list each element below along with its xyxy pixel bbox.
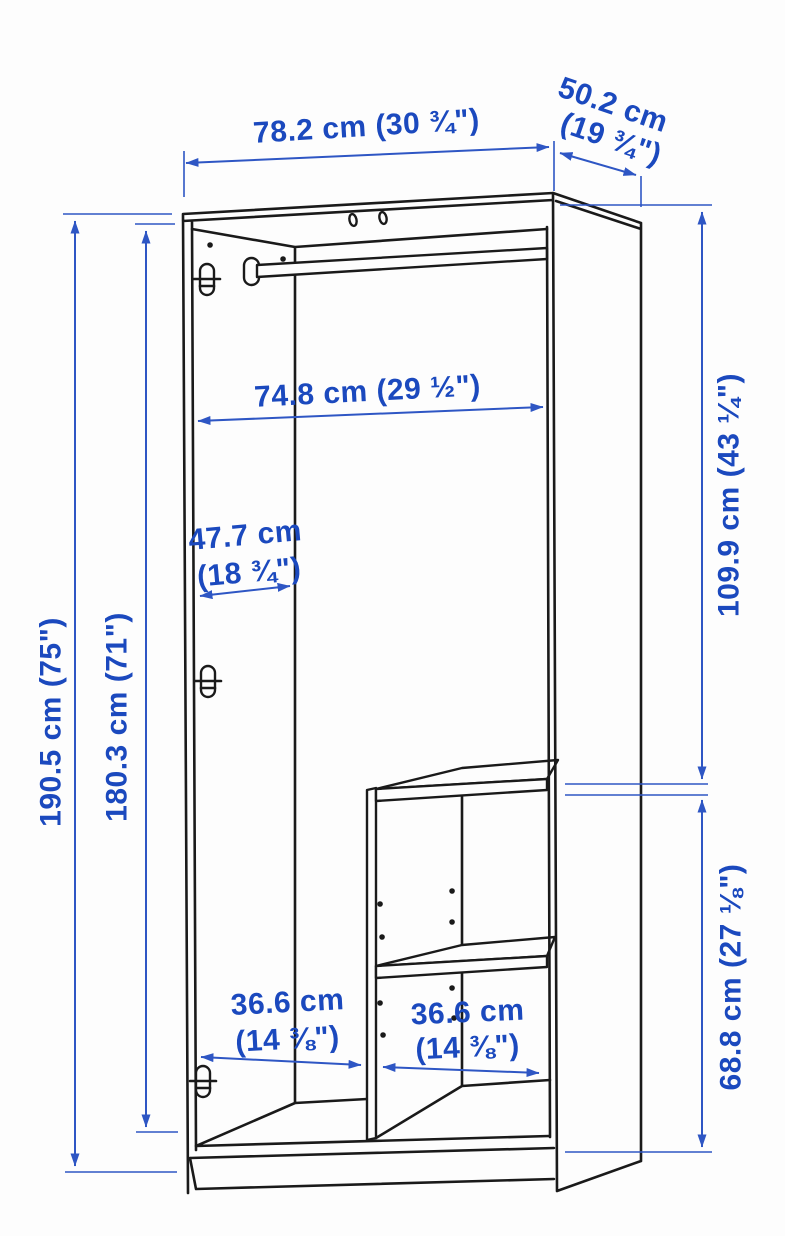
- right-compartment-label-line1: 36.6 cm: [410, 994, 525, 1032]
- left-compartment-label-line1: 36.6 cm: [230, 983, 345, 1022]
- top-panel-hole-left: [348, 213, 357, 226]
- dim-upper-section-height: 109.9 cm (43 ¼"): [560, 205, 746, 784]
- interior-width-label: 74.8 cm (29 ½"): [253, 369, 481, 414]
- dim-overall-width: 78.2 cm (30 ¾"): [184, 103, 554, 197]
- side-panel-depth-label-line1: 47.7 cm: [187, 514, 303, 557]
- left-compartment-label-line2: (14 ⅜"): [234, 1020, 340, 1058]
- hinge-middle: [195, 666, 221, 697]
- dim-overall-depth: 50.2 cm (19 ¾"): [554, 71, 672, 207]
- dim-right-compartment-width: 36.6 cm (14 ⅜"): [383, 994, 539, 1073]
- diagram-stage: 78.2 cm (30 ¾") 50.2 cm (19 ¾") 74.8 cm …: [0, 0, 785, 1236]
- right-compartment-label-line2: (14 ⅜"): [415, 1029, 521, 1067]
- hinge-top: [194, 264, 220, 295]
- hinge-bottom: [190, 1066, 216, 1097]
- wardrobe-dimension-diagram: 78.2 cm (30 ¾") 50.2 cm (19 ¾") 74.8 cm …: [0, 0, 785, 1236]
- clothes-rail: [257, 248, 547, 277]
- top-panel-hole-right: [378, 211, 387, 224]
- lower-section-height-label: 68.8 cm (27 ⅛"): [715, 864, 748, 1091]
- overall-width-label: 78.2 cm (30 ¾"): [252, 103, 480, 150]
- interior-height-label: 180.3 cm (71"): [101, 612, 134, 822]
- dim-interior-width: 74.8 cm (29 ½"): [198, 369, 543, 421]
- dim-interior-height: 180.3 cm (71"): [101, 224, 179, 1132]
- divider-panel: [367, 788, 376, 1140]
- dim-lower-section-height: 68.8 cm (27 ⅛"): [565, 795, 748, 1152]
- overall-height-label: 190.5 cm (75"): [35, 617, 68, 827]
- dim-side-panel-depth: 47.7 cm (18 ¾"): [187, 514, 303, 596]
- upper-section-height-label: 109.9 cm (43 ¼"): [713, 373, 746, 617]
- peg-holes: [210, 245, 454, 1035]
- dim-left-compartment-width: 36.6 cm (14 ⅜"): [201, 983, 361, 1065]
